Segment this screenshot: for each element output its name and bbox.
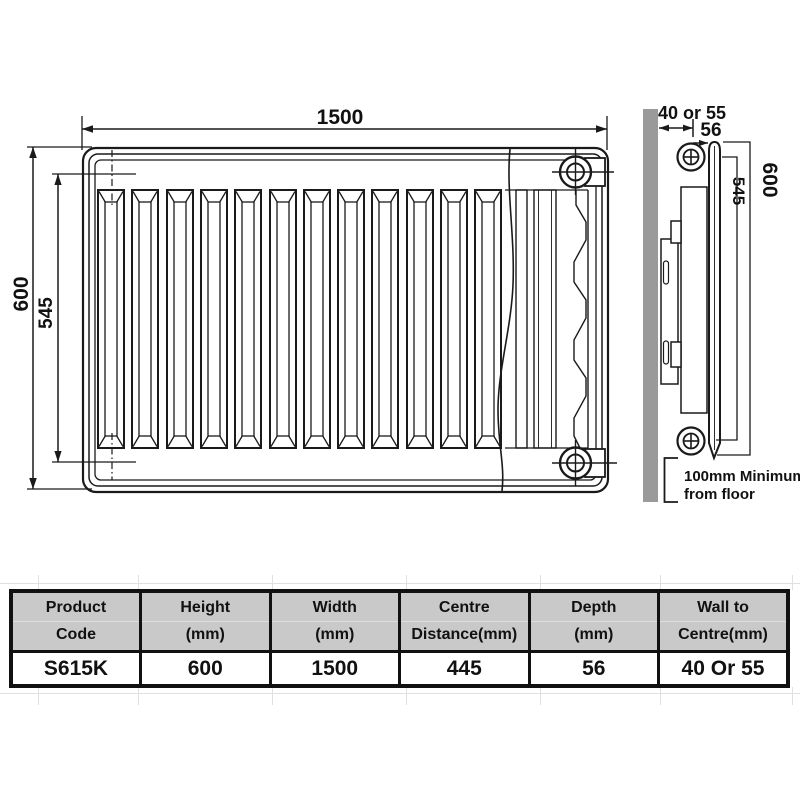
radiator-slats-simplified: [505, 190, 588, 448]
value-depth: 56: [529, 652, 659, 687]
front-centre-label: 545: [36, 297, 57, 329]
zigzag-fin-edge: [574, 190, 586, 448]
wall-bracket: [661, 221, 681, 384]
side-centre-label: 545: [729, 177, 748, 205]
convector-block: [681, 187, 707, 413]
front-width-label: 1500: [317, 106, 364, 129]
valve-top: [678, 144, 705, 171]
valve-bottom: [678, 428, 705, 455]
spec-table: Product Code Height (mm) Width (mm) Cent…: [9, 589, 790, 688]
value-wall-to-centre: 40 Or 55: [659, 652, 789, 687]
side-depth-label: 56: [700, 120, 721, 141]
header-depth: Depth (mm): [529, 591, 659, 652]
header-height: Height (mm): [141, 591, 271, 652]
radiator-slats: [98, 190, 501, 448]
front-height-label: 600: [10, 276, 33, 311]
technical-diagram-canvas: 1500 600 545: [0, 0, 800, 578]
header-centre-distance: Centre Distance(mm): [400, 591, 530, 652]
pipe-connection-top: [552, 149, 614, 195]
wall: [643, 109, 658, 502]
floor-clearance-note-line1: 100mm Minimum: [684, 468, 800, 485]
value-centre-distance: 445: [400, 652, 530, 687]
floor-clearance-note-line2: from floor: [684, 486, 755, 503]
value-product-code: S615K: [11, 652, 141, 687]
value-height: 600: [141, 652, 271, 687]
side-height-label: 600: [758, 162, 781, 197]
spec-table-header-row: Product Code Height (mm) Width (mm) Cent…: [11, 591, 788, 652]
spec-table-data-row: S615K 600 1500 445 56 40 Or 55: [11, 652, 788, 687]
header-width: Width (mm): [270, 591, 400, 652]
radiator-panel-profile: [709, 142, 720, 458]
floor-clearance-bracket: [665, 458, 679, 502]
value-width: 1500: [270, 652, 400, 687]
technical-diagram: 1500 600 545: [0, 0, 800, 578]
side-view: 40 or 55 56 545 600 100mm Minimum from f…: [643, 103, 800, 503]
header-product-code: Product Code: [11, 591, 141, 652]
header-wall-to-centre: Wall to Centre(mm): [659, 591, 789, 652]
front-view: 1500 600 545: [10, 106, 617, 492]
